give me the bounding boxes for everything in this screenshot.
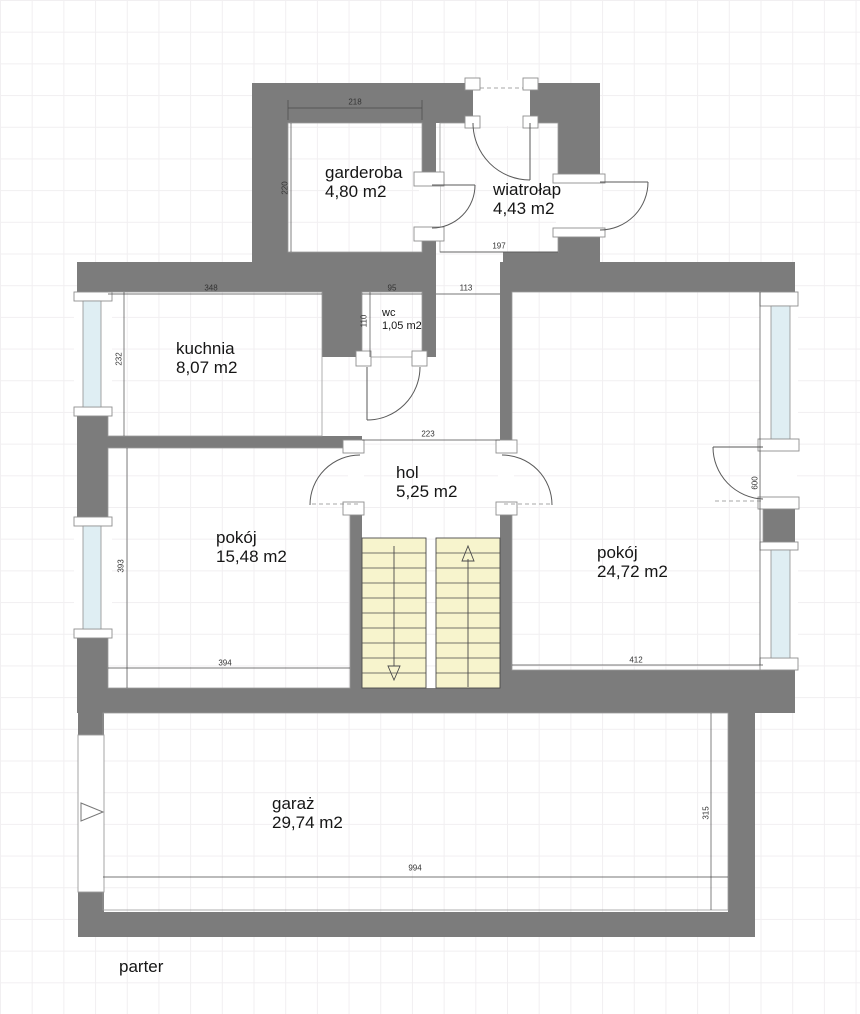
dimension-label: 348 xyxy=(204,284,217,293)
room-name: pokój xyxy=(216,528,287,547)
labels-layer: garderoba 4,80 m2 wiatrołap 4,43 m2 wc 1… xyxy=(0,0,860,1014)
dimension-label: 220 xyxy=(281,181,290,194)
room-name: wiatrołap xyxy=(493,180,561,199)
room-name: garaż xyxy=(272,794,343,813)
room-name: kuchnia xyxy=(176,339,237,358)
dimension-label: 223 xyxy=(421,430,434,439)
floor-label: parter xyxy=(119,957,163,977)
dimension-label: 394 xyxy=(218,659,231,668)
room-area: 4,43 m2 xyxy=(493,199,561,218)
room-label-wc: wc 1,05 m2 xyxy=(382,307,422,332)
room-name: hol xyxy=(396,463,457,482)
dimension-label: 218 xyxy=(348,98,361,107)
room-area: 24,72 m2 xyxy=(597,562,668,581)
room-label-garderoba: garderoba 4,80 m2 xyxy=(325,163,403,201)
room-label-wiatrolap: wiatrołap 4,43 m2 xyxy=(493,180,561,218)
room-area: 8,07 m2 xyxy=(176,358,237,377)
dimension-label: 393 xyxy=(117,559,126,572)
room-area: 5,25 m2 xyxy=(396,482,457,501)
room-name: wc xyxy=(382,307,422,320)
dimension-label: 95 xyxy=(388,284,397,293)
room-area: 4,80 m2 xyxy=(325,182,403,201)
room-name: pokój xyxy=(597,543,668,562)
room-label-kuchnia: kuchnia 8,07 m2 xyxy=(176,339,237,377)
room-area: 15,48 m2 xyxy=(216,547,287,566)
room-area: 29,74 m2 xyxy=(272,813,343,832)
dimension-label: 197 xyxy=(492,242,505,251)
dimension-label: 600 xyxy=(751,476,760,489)
room-label-garaz: garaż 29,74 m2 xyxy=(272,794,343,832)
dimension-label: 994 xyxy=(408,864,421,873)
room-label-pokoj-left: pokój 15,48 m2 xyxy=(216,528,287,566)
room-label-hol: hol 5,25 m2 xyxy=(396,463,457,501)
dimension-label: 412 xyxy=(629,656,642,665)
room-area: 1,05 m2 xyxy=(382,320,422,333)
dimension-label: 113 xyxy=(460,284,473,293)
floor-plan-canvas: garderoba 4,80 m2 wiatrołap 4,43 m2 wc 1… xyxy=(0,0,860,1014)
room-label-pokoj-right: pokój 24,72 m2 xyxy=(597,543,668,581)
dimension-label: 232 xyxy=(115,352,124,365)
dimension-label: 110 xyxy=(360,315,369,328)
room-name: garderoba xyxy=(325,163,403,182)
dimension-label: 315 xyxy=(702,806,711,819)
